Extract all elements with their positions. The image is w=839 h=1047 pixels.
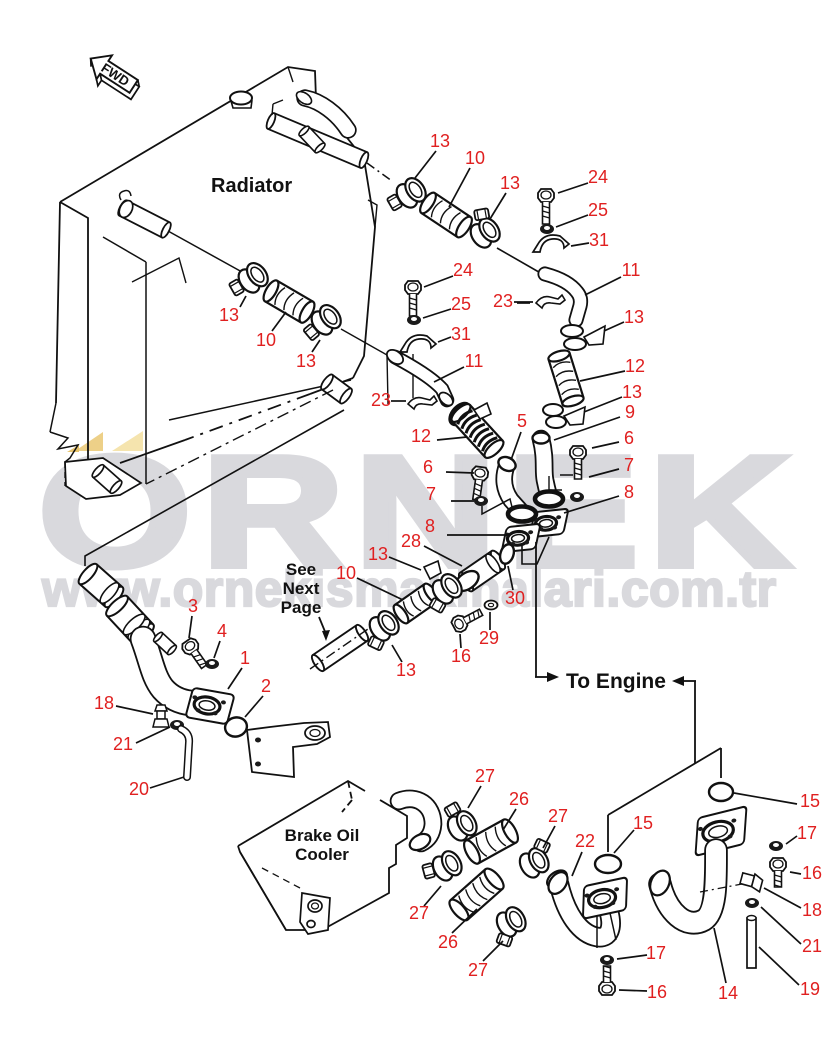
svg-text:31: 31	[589, 230, 609, 250]
svg-text:23: 23	[493, 291, 513, 311]
svg-text:18: 18	[802, 900, 822, 920]
svg-text:See: See	[286, 560, 316, 579]
svg-text:27: 27	[475, 766, 495, 786]
svg-text:25: 25	[588, 200, 608, 220]
svg-text:21: 21	[802, 936, 822, 956]
svg-text:26: 26	[438, 932, 458, 952]
svg-text:2: 2	[261, 676, 271, 696]
svg-text:24: 24	[453, 260, 473, 280]
svg-text:10: 10	[336, 563, 356, 583]
svg-text:20: 20	[129, 779, 149, 799]
svg-text:15: 15	[800, 791, 820, 811]
svg-text:28: 28	[401, 531, 421, 551]
svg-text:14: 14	[718, 983, 738, 1003]
svg-text:8: 8	[624, 482, 634, 502]
svg-text:3: 3	[188, 596, 198, 616]
svg-text:To Engine: To Engine	[566, 670, 666, 693]
svg-text:27: 27	[468, 960, 488, 980]
svg-text:1: 1	[240, 648, 250, 668]
svg-text:16: 16	[802, 863, 822, 883]
svg-text:13: 13	[296, 351, 316, 371]
svg-text:11: 11	[622, 260, 641, 280]
svg-text:13: 13	[396, 660, 416, 680]
svg-text:7: 7	[426, 484, 436, 504]
svg-text:5: 5	[517, 411, 527, 431]
svg-text:21: 21	[113, 734, 133, 754]
svg-text:8: 8	[425, 516, 435, 536]
svg-text:4: 4	[217, 621, 227, 641]
svg-text:25: 25	[451, 294, 471, 314]
svg-text:13: 13	[500, 173, 520, 193]
svg-text:13: 13	[430, 131, 450, 151]
svg-text:22: 22	[575, 831, 595, 851]
svg-text:Page: Page	[281, 598, 322, 617]
svg-text:17: 17	[797, 823, 817, 843]
svg-text:10: 10	[256, 330, 276, 350]
svg-text:6: 6	[624, 428, 634, 448]
svg-text:24: 24	[588, 167, 608, 187]
svg-text:30: 30	[505, 588, 525, 608]
svg-text:Brake Oil: Brake Oil	[285, 826, 360, 845]
svg-text:12: 12	[625, 356, 645, 376]
svg-text:12: 12	[411, 426, 431, 446]
svg-text:6: 6	[423, 457, 433, 477]
svg-text:10: 10	[465, 148, 485, 168]
svg-text:13: 13	[624, 307, 644, 327]
svg-text:Next: Next	[283, 579, 320, 598]
svg-text:13: 13	[368, 544, 388, 564]
svg-text:15: 15	[633, 813, 653, 833]
svg-text:Cooler: Cooler	[295, 845, 349, 864]
svg-text:29: 29	[479, 628, 499, 648]
svg-text:9: 9	[625, 402, 635, 422]
svg-text:13: 13	[622, 382, 642, 402]
svg-text:19: 19	[800, 979, 820, 999]
svg-text:31: 31	[451, 324, 471, 344]
svg-text:23: 23	[371, 390, 391, 410]
svg-text:16: 16	[451, 646, 471, 666]
svg-text:26: 26	[509, 789, 529, 809]
svg-text:7: 7	[624, 455, 634, 475]
svg-text:17: 17	[646, 943, 666, 963]
svg-text:27: 27	[409, 903, 429, 923]
svg-text:11: 11	[465, 351, 484, 371]
svg-text:18: 18	[94, 693, 114, 713]
svg-text:16: 16	[647, 982, 667, 1002]
svg-text:27: 27	[548, 806, 568, 826]
svg-text:13: 13	[219, 305, 239, 325]
svg-text:Radiator: Radiator	[211, 175, 292, 197]
